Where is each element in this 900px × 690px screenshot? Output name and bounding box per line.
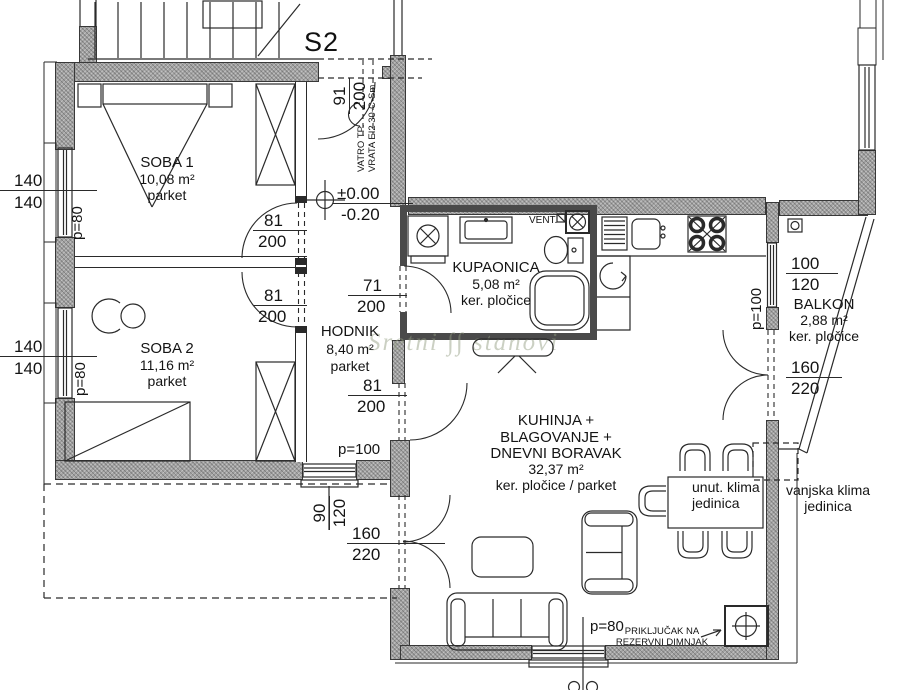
dim-door-kupaonica-top: 71 — [363, 276, 382, 295]
dim-window-soba2-bottom: 140 — [14, 359, 42, 378]
sofa-small — [582, 511, 637, 594]
dim-window-balkon-bottom: 120 — [791, 275, 819, 294]
dining-chair — [722, 531, 752, 558]
dim-door-soba2-top: 81 — [264, 286, 283, 305]
dim-door-soba1-top: 81 — [264, 211, 283, 230]
chimney-label: PRIKLJUČAK NA REZERVNI DIMNJAK — [616, 627, 708, 648]
room-floor-hodnik: parket — [331, 359, 370, 375]
kupaonica-door — [400, 266, 451, 313]
living-door — [399, 383, 467, 440]
dim-door-living-bottom: 200 — [357, 397, 385, 416]
desk-chair — [92, 299, 145, 333]
dining-chair — [723, 444, 753, 471]
floor-plan: Sretni ∫∫ stanovi — [0, 0, 900, 690]
stairwell — [80, 0, 432, 78]
dim-door-balkon-top: 160 — [791, 358, 819, 377]
room-label-kupaonica: KUPAONICA — [452, 260, 539, 277]
dim-door-living-top: 81 — [363, 376, 382, 395]
dim-parapet-balkon: p=100 — [749, 288, 766, 330]
dim-door-terrace-top: 160 — [352, 524, 380, 543]
stove — [688, 216, 726, 252]
facade-lines — [44, 0, 883, 663]
room-area-balkon: 2,88 m² — [800, 313, 847, 329]
room-area-kupaonica: 5,08 m² — [472, 277, 519, 293]
shower — [530, 271, 589, 330]
sofa-large — [447, 593, 567, 650]
boiler-symbol — [600, 263, 626, 289]
balkon-french-door — [723, 330, 774, 420]
dish-drainer — [602, 217, 627, 250]
dim-window-soba1-top: 140 — [14, 171, 42, 190]
dining-chair — [639, 486, 666, 516]
indoor-ac-label: unut. klima jedinica — [692, 480, 760, 511]
dim-window-soba2-top: 140 — [14, 337, 42, 356]
room-area-hodnik: 8,40 m² — [326, 342, 373, 358]
level-below: -0.20 — [341, 205, 380, 224]
toilet — [545, 237, 584, 264]
outdoor-ac-label: vanjska klima jedinica — [786, 483, 870, 514]
room-area-living: 32,37 m² — [528, 462, 583, 478]
coffee-table — [472, 537, 533, 577]
room-floor-soba1: parket — [148, 188, 187, 204]
room-label-living-1: KUHINJA + — [518, 413, 594, 430]
sideboard — [473, 339, 553, 373]
terrace-french-door — [399, 495, 450, 588]
room-label-soba2: SOBA 2 — [140, 341, 193, 358]
kitchen-fixtures — [597, 216, 766, 330]
bathroom-sink — [460, 217, 512, 243]
room-label-soba1: SOBA 1 — [140, 155, 193, 172]
unit-label: S2 — [304, 27, 339, 57]
wardrobe — [256, 362, 295, 461]
room-label-hodnik: HODNIK — [321, 324, 379, 341]
dim-door-soba2-bottom: 200 — [258, 307, 286, 326]
plan-linework — [0, 0, 900, 690]
dim-window-soba1-bottom: 140 — [14, 193, 42, 212]
fire-door-note: VATRO TP. VRATA EI2 30-C-Sm — [357, 85, 378, 172]
dining-chair — [678, 531, 708, 558]
dim-line — [0, 190, 97, 191]
dim-door-terrace-bottom: 220 — [352, 545, 380, 564]
dim-door-soba1-bottom: 200 — [258, 232, 286, 251]
dim-window-hodnik: 90 120 — [310, 496, 349, 530]
kitchen-sink — [632, 219, 665, 249]
wardrobe — [256, 84, 295, 185]
room-floor-living: ker. pločice / parket — [496, 478, 617, 494]
dim-parapet-hodnik: p=100 — [338, 442, 380, 459]
vent-shaft — [557, 211, 589, 233]
room-floor-kupaonica: ker. pločice — [461, 293, 531, 309]
ac-chimney — [701, 443, 798, 646]
dim-parapet-soba1: p=80 — [70, 206, 87, 240]
chimney-connection — [725, 606, 768, 646]
room-floor-balkon: ker. pločice — [789, 329, 859, 345]
dining-chair — [680, 444, 710, 471]
washing-machine — [408, 216, 448, 263]
dim-line — [0, 356, 97, 357]
room-floor-soba2: parket — [148, 374, 187, 390]
dim-door-kupaonica-bottom: 200 — [357, 297, 385, 316]
room-area-soba1: 10,08 m² — [139, 172, 194, 188]
dim-parapet-soba2: p=80 — [73, 362, 90, 396]
room-area-soba2: 11,16 m² — [140, 358, 194, 374]
level-above: ±0.00 — [337, 184, 379, 203]
vent-label: VENT. — [529, 215, 557, 226]
dim-window-balkon-top: 100 — [791, 254, 819, 273]
dim-door-balkon-bottom: 220 — [791, 379, 819, 398]
